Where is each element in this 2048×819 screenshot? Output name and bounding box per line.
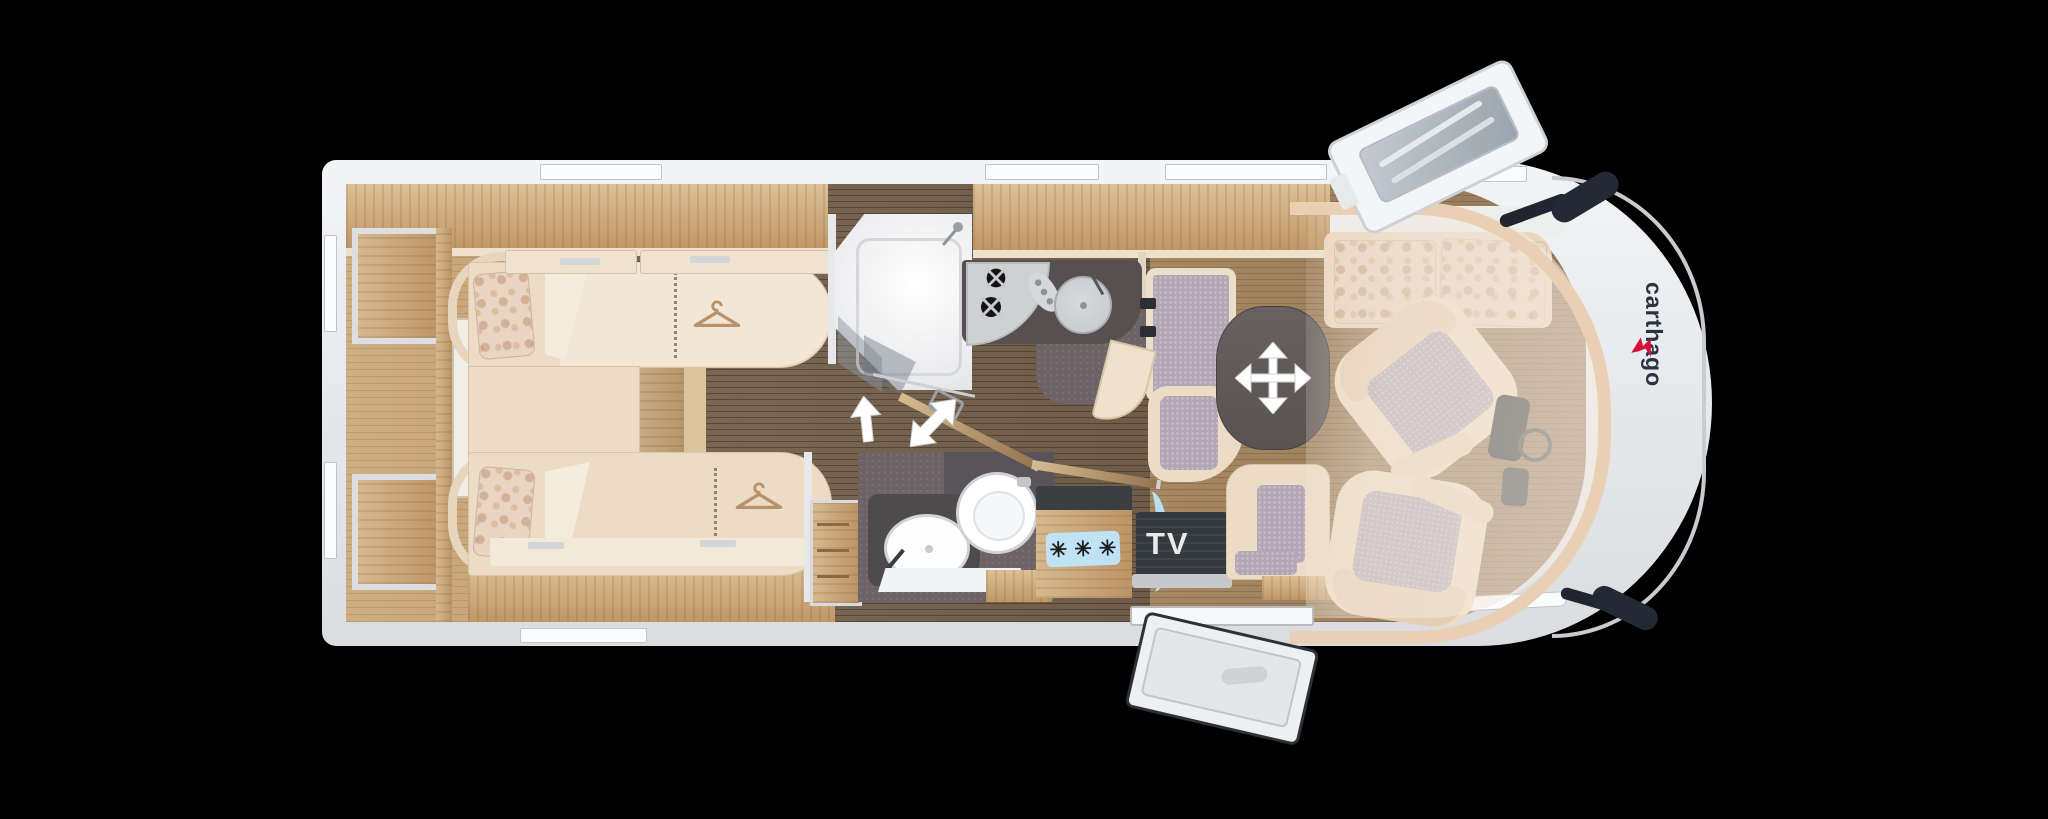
kitchen-sink [1054, 276, 1112, 334]
mattress-seam-top [674, 272, 677, 358]
window-top-dinette [1165, 164, 1327, 180]
window-rear-lower [324, 462, 337, 559]
side-seat-pad [1160, 396, 1218, 470]
toilet-flush [1017, 477, 1031, 487]
rear-partition-panel [436, 228, 452, 622]
bed-latch [700, 540, 736, 547]
up-arrow-icon [848, 394, 885, 443]
rear-shelf-upper [352, 228, 448, 344]
motorhome-floorplan-scene: ✳✳✳ TV [0, 0, 2048, 819]
hanger-icon [688, 300, 746, 332]
bed-step-plank [684, 368, 706, 456]
brand-logo: carthago [1640, 282, 1676, 432]
basin-faucet [885, 549, 905, 571]
fridge-top-vent [1036, 486, 1132, 512]
brand-logo-accent [1630, 334, 1656, 358]
hanger-rail [817, 523, 849, 526]
bed-latch [560, 258, 600, 265]
bed-latch [690, 256, 730, 263]
hob-burner-icon [976, 292, 1006, 322]
tv-label: TV [1146, 526, 1190, 562]
sink-drain [1080, 302, 1087, 309]
overhead-lockers-kitchen [973, 184, 1330, 258]
toilet [956, 472, 1038, 554]
middle-bench-cushion [468, 366, 640, 456]
snowflake-icon: ✳✳✳ [1045, 531, 1120, 568]
rear-shelf-lower [352, 474, 448, 590]
overhead-flap-right [640, 250, 832, 274]
door-hinge [1140, 298, 1156, 309]
tv-unit: TV [1136, 512, 1228, 576]
shower-head-icon [938, 220, 966, 248]
corridor-wardrobe [810, 500, 862, 606]
toilet-bowl [973, 491, 1025, 541]
pillow-top-bed [472, 270, 535, 361]
window-top-kitchen [985, 164, 1099, 180]
tv-base [1132, 574, 1232, 588]
window-top-bedroom [540, 164, 662, 180]
fridge-rating-panel: ✳✳✳ [1045, 531, 1120, 568]
fridge-cabinet: ✳✳✳ [1036, 486, 1132, 598]
window-rear-upper [324, 235, 337, 332]
hanger-rail [817, 575, 849, 578]
door-hinge [1140, 326, 1156, 337]
bed-latch [528, 542, 564, 549]
hob-burner-icon [982, 264, 1010, 292]
window-bottom-bedroom [520, 628, 647, 643]
brand-logo-text: carthago [1640, 282, 1667, 387]
bench-seat-pad [1235, 551, 1297, 575]
basin-drain [925, 545, 933, 553]
hanger-rail [817, 549, 849, 552]
hanger-icon [730, 482, 788, 514]
